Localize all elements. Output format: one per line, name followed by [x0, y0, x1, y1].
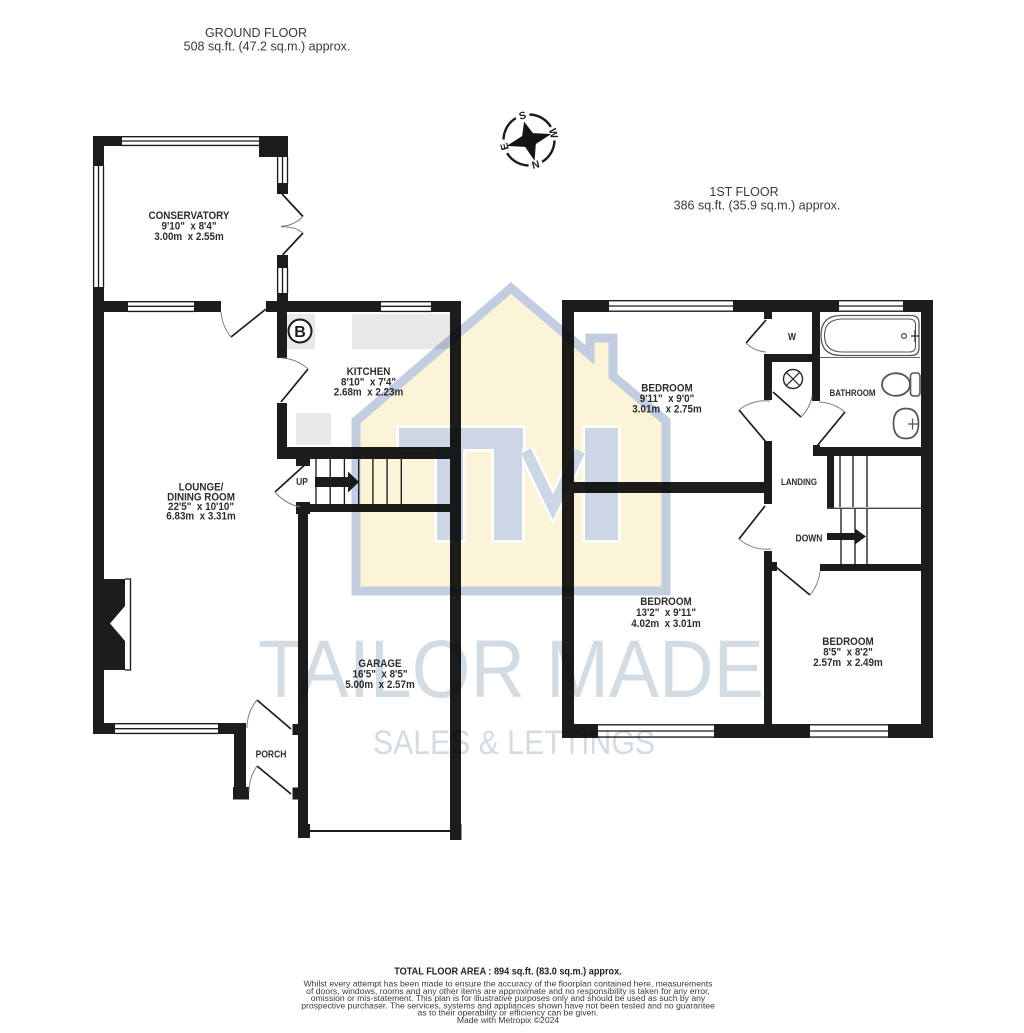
svg-text:W: W — [788, 331, 796, 342]
svg-text:GROUND FLOOR: GROUND FLOOR — [205, 26, 307, 40]
svg-text:508 sq.ft. (47.2 sq.m.) approx: 508 sq.ft. (47.2 sq.m.) approx. — [184, 40, 351, 54]
svg-text:TAILOR MADE: TAILOR MADE — [258, 624, 764, 715]
svg-text:UP: UP — [296, 476, 308, 487]
svg-text:3.00m x 2.55m: 3.00m x 2.55m — [154, 230, 223, 243]
svg-text:DOWN: DOWN — [796, 533, 823, 544]
svg-text:LANDING: LANDING — [781, 476, 817, 487]
svg-text:SALES & LETTINGS: SALES & LETTINGS — [373, 724, 655, 762]
svg-text:6.83m x 3.31m: 6.83m x 3.31m — [166, 510, 235, 523]
svg-text:PORCH: PORCH — [256, 749, 287, 760]
svg-text:1ST FLOOR: 1ST FLOOR — [709, 185, 778, 199]
svg-text:Made with Metropix ©2024: Made with Metropix ©2024 — [457, 1015, 560, 1025]
svg-text:TOTAL FLOOR AREA : 894 sq.ft.: TOTAL FLOOR AREA : 894 sq.ft. (83.0 sq.m… — [394, 966, 622, 978]
svg-text:BATHROOM: BATHROOM — [830, 387, 876, 398]
svg-text:B: B — [294, 324, 306, 341]
svg-text:2.57m x 2.49m: 2.57m x 2.49m — [813, 656, 882, 669]
svg-text:386 sq.ft. (35.9 sq.m.) approx: 386 sq.ft. (35.9 sq.m.) approx. — [674, 199, 841, 213]
